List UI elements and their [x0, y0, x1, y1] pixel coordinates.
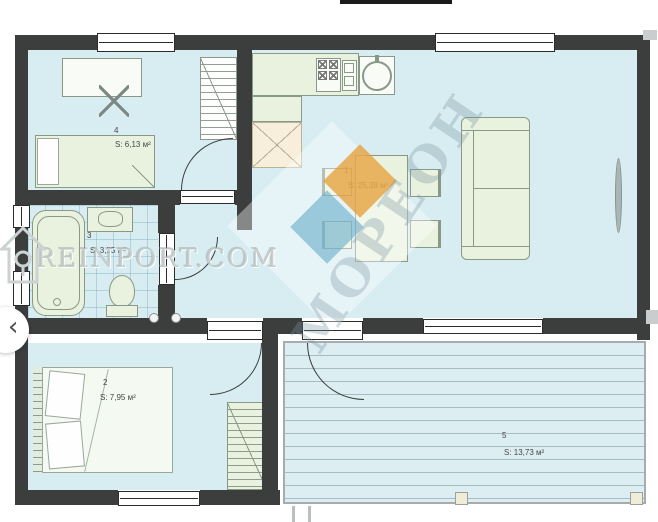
stove-burner	[329, 60, 338, 69]
stove-burner	[318, 60, 327, 69]
appliance-detail	[344, 76, 354, 86]
wall-room4-bottom	[15, 190, 180, 205]
house-logo-icon	[0, 222, 46, 288]
terrace-leg	[308, 506, 311, 522]
bed-pillow	[45, 421, 85, 470]
wall-room2-bottom	[15, 490, 118, 505]
bed-pillow	[45, 370, 86, 420]
bathtub-drain	[53, 298, 61, 306]
faucet	[375, 55, 379, 63]
room-2-area: S: 7,95 м²	[100, 393, 136, 402]
stove-burner	[329, 71, 338, 80]
wall-bathroom-right	[158, 205, 175, 233]
wall-room2-right	[262, 330, 278, 505]
room-5-number: 5	[502, 431, 506, 440]
chevron-left-icon: ‹	[8, 312, 18, 342]
wall-right	[637, 35, 650, 340]
site-watermark: REINPORT.COM	[36, 244, 279, 274]
wall-cap	[643, 30, 657, 40]
room-2-number: 2	[103, 378, 107, 387]
sofa-armrest-line	[461, 246, 530, 247]
door-room2	[207, 321, 263, 340]
pipe-riser	[171, 313, 181, 323]
floor-plan-image: 1 S: 25,38 м² 2 S: 7,95 м² 3 S: 3,55 м² …	[0, 0, 658, 522]
wall-cap	[646, 310, 658, 324]
ladder-diagonal	[200, 57, 237, 140]
room-4-number: 4	[114, 126, 118, 135]
wall-bottom-main	[543, 318, 650, 334]
desk-chair	[99, 85, 129, 117]
sink-bowl	[98, 211, 123, 227]
window-top-living	[435, 33, 555, 52]
window-room2-bottom	[118, 491, 200, 506]
toilet-tank	[106, 305, 138, 317]
room-3-number: 3	[87, 231, 91, 240]
window-living-terrace	[423, 319, 543, 334]
terrace-post	[455, 492, 468, 505]
kitchen-counter-side	[252, 96, 302, 122]
stove-burner	[318, 71, 327, 80]
wall-bottom-main	[363, 318, 423, 334]
door-room4	[180, 190, 235, 204]
blanket-fold	[132, 165, 155, 188]
room-4-area: S: 6,13 м²	[115, 140, 151, 149]
terrace-leg	[292, 506, 295, 522]
terrace-post	[630, 492, 643, 505]
window-top-room4	[97, 33, 175, 52]
wall-room2-bottom	[200, 490, 280, 505]
round-kitchen-sink	[362, 61, 392, 91]
bed-pillow	[37, 138, 59, 185]
appliance-detail	[344, 63, 354, 73]
toilet-bowl	[109, 275, 135, 307]
wardrobe-diagonal	[227, 402, 267, 490]
tv	[615, 158, 622, 233]
wall-left-lower	[15, 330, 28, 505]
room-5-area: S: 13,73 м²	[504, 448, 544, 457]
bed-headboard	[33, 367, 43, 473]
sofa-seat-split	[474, 188, 530, 189]
pipe-riser	[149, 313, 159, 323]
cropped-top-bar	[340, 0, 452, 4]
